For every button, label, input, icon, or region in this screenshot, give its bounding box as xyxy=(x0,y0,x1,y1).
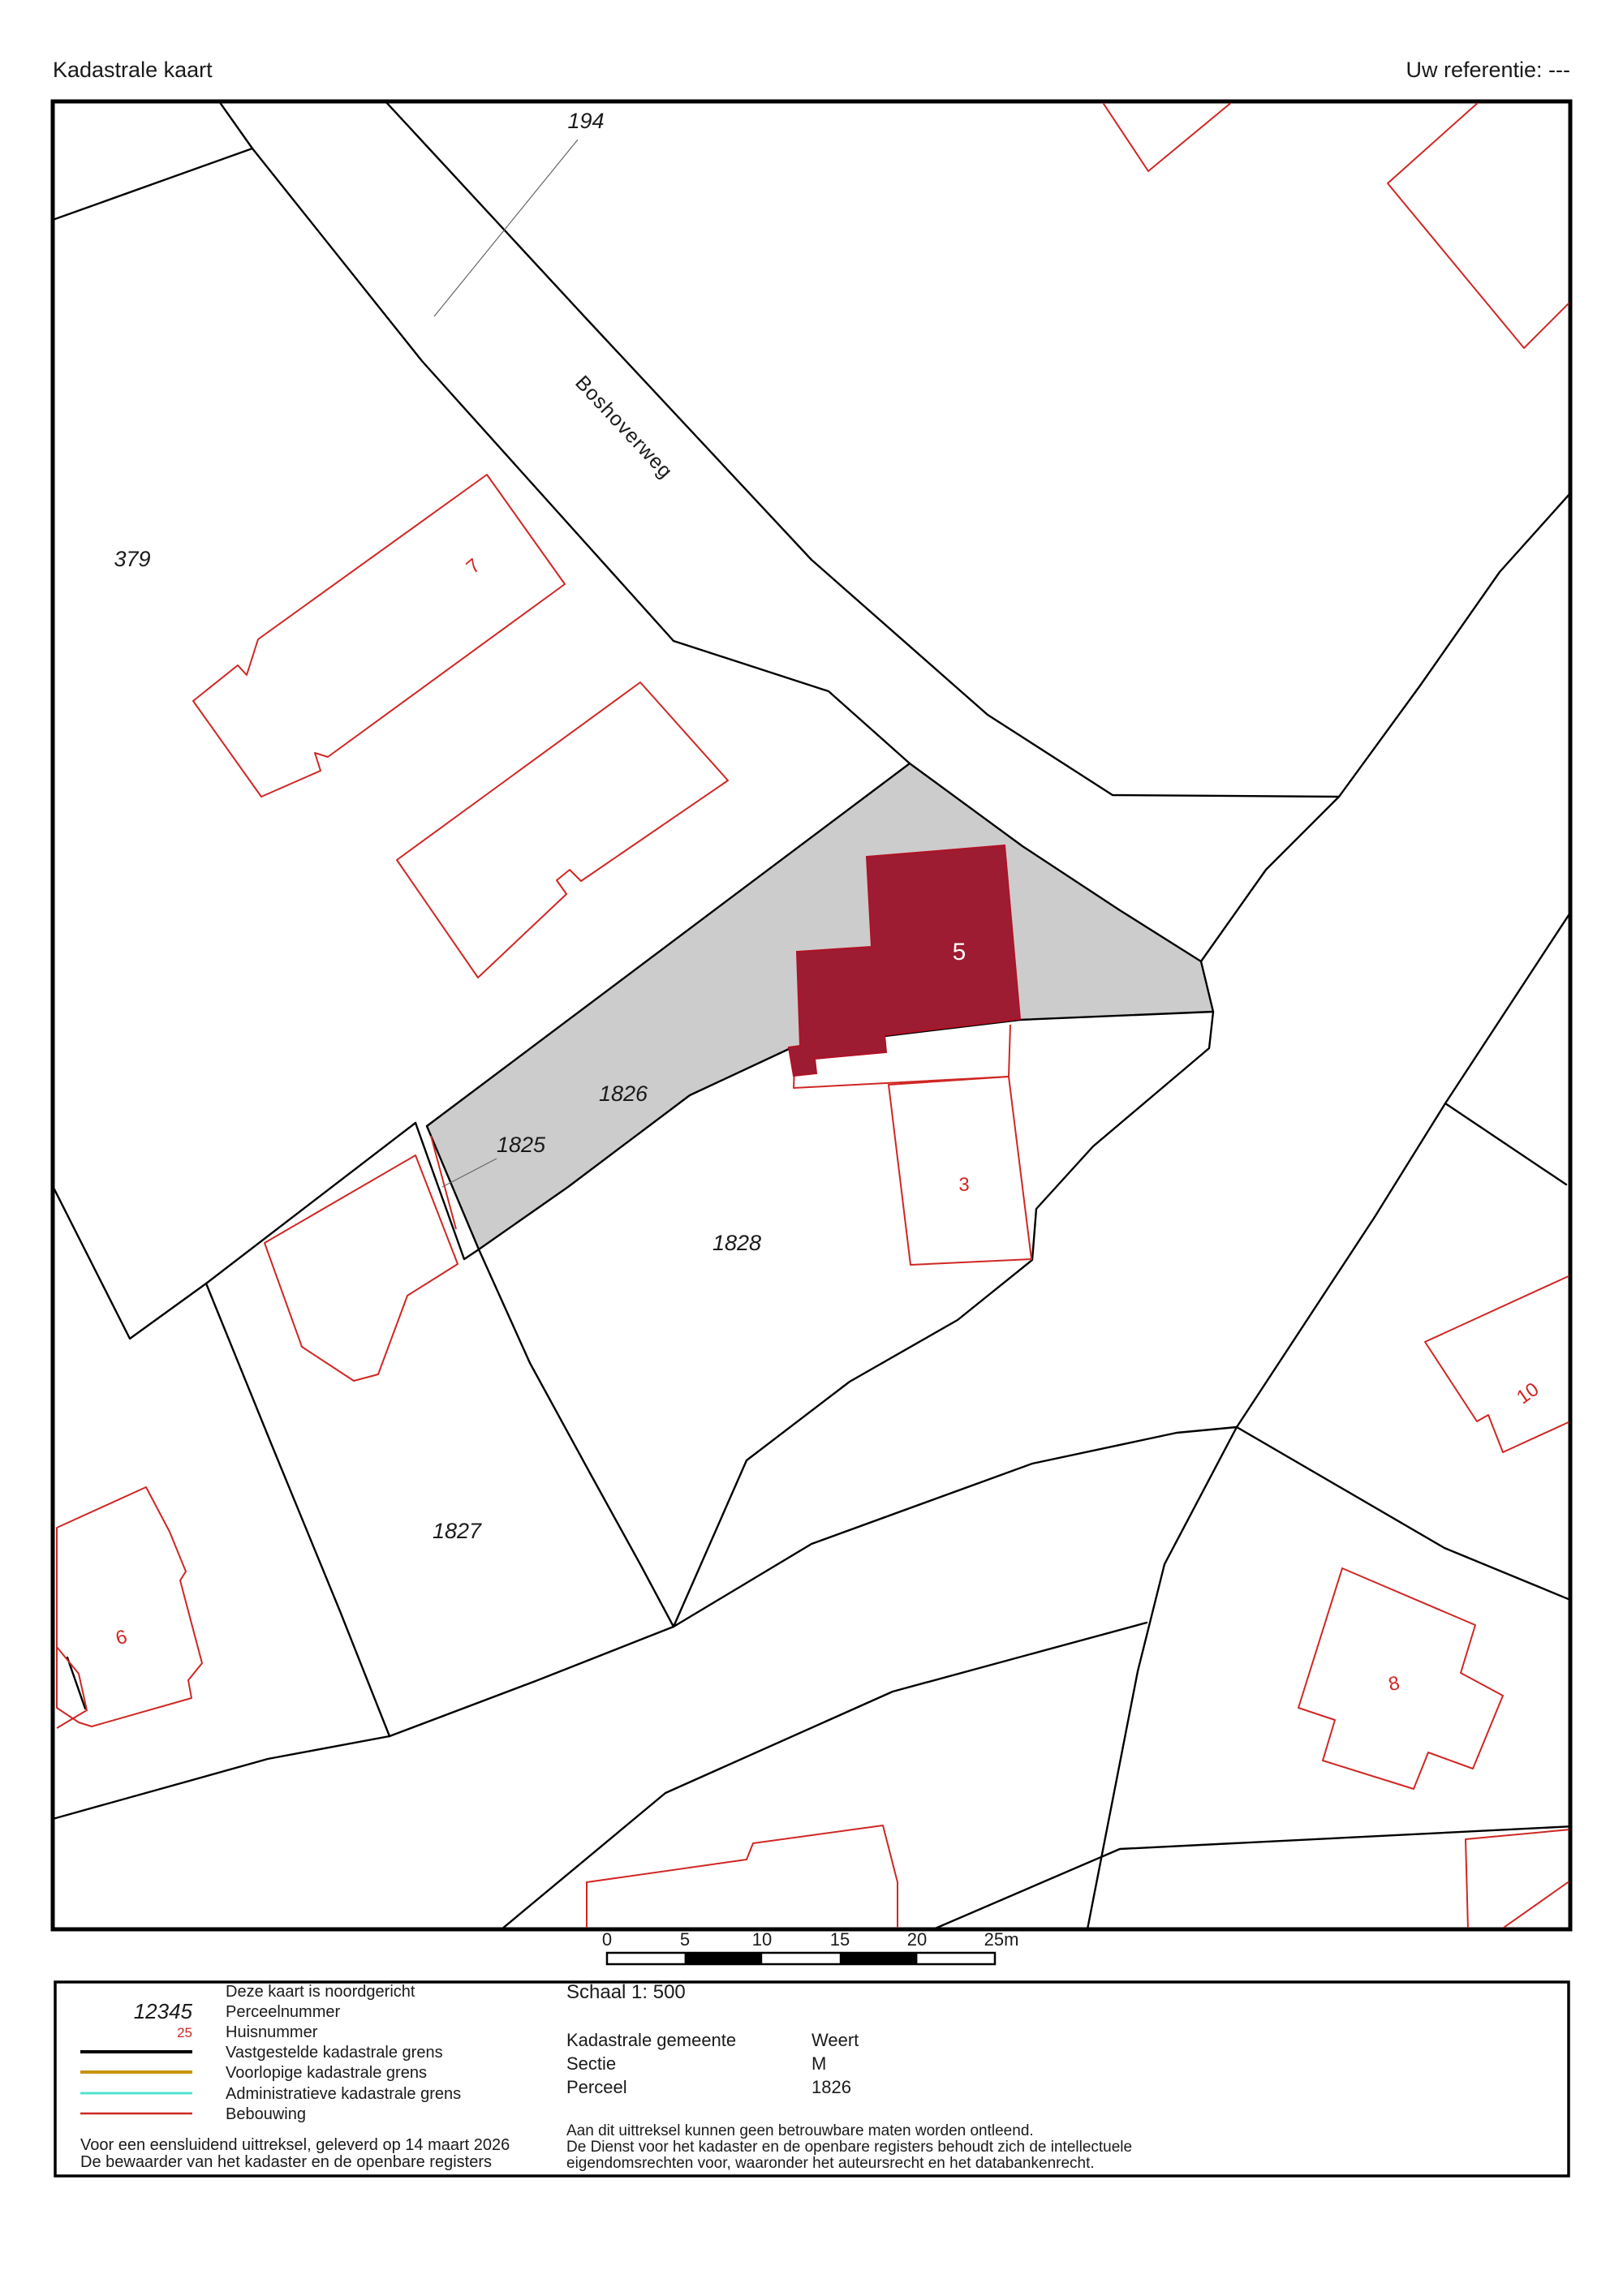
legend-label-huisnummer: Huisnummer xyxy=(226,2023,318,2041)
reference-label: Uw referentie: --- xyxy=(1406,58,1570,82)
legend-symbol-huisnummer: 25 xyxy=(177,2025,192,2040)
disclaimer-line-1: Aan dit uittreksel kunnen geen betrouwba… xyxy=(566,2122,1034,2139)
detail-label-gemeente: Kadastrale gemeente xyxy=(566,2030,736,2050)
map-canvas: Kadastrale kaart Uw referentie: --- xyxy=(0,0,1623,2296)
legend-label-perceelnummer: Perceelnummer xyxy=(226,2003,341,2021)
parcel-label-1825: 1825 xyxy=(497,1133,546,1157)
scale-tick-15: 15 xyxy=(830,1929,850,1950)
parcel-label-1828: 1828 xyxy=(712,1231,761,1255)
legend-label-vastgestelde: Vastgestelde kadastrale grens xyxy=(226,2044,443,2062)
legend-delivery-line2: De bewaarder van het kadaster en de open… xyxy=(80,2153,492,2171)
scale-tick-25m: 25m xyxy=(984,1929,1019,1950)
legend-north-note: Deze kaart is noordgericht xyxy=(226,1983,415,2001)
parcel-label-194: 194 xyxy=(567,109,604,133)
parcel-label-379: 379 xyxy=(114,547,150,571)
parcel-label-1827: 1827 xyxy=(433,1519,482,1543)
parcel-label-1826: 1826 xyxy=(599,1081,648,1106)
scale-tick-20: 20 xyxy=(907,1929,927,1950)
page-title: Kadastrale kaart xyxy=(53,58,213,82)
detail-value-perceel: 1826 xyxy=(811,2077,851,2097)
cadastral-map-page: Kadastrale kaart Uw referentie: --- xyxy=(0,0,1623,2296)
scale-bar-frame xyxy=(607,1953,995,1964)
disclaimer-line-2: De Dienst voor het kadaster en de openba… xyxy=(566,2139,1132,2156)
scale-tick-10: 10 xyxy=(752,1929,772,1950)
house-number-5: 5 xyxy=(953,939,966,965)
legend-symbol-perceelnummer: 12345 xyxy=(134,1999,193,2023)
legend-delivery-line1: Voor een eensluidend uittreksel, gelever… xyxy=(80,2136,510,2154)
detail-value-sectie: M xyxy=(811,2053,826,2074)
scale-tick-5: 5 xyxy=(680,1929,690,1950)
house-number-3: 3 xyxy=(958,1174,969,1196)
detail-value-gemeente: Weert xyxy=(811,2030,859,2050)
detail-label-sectie: Sectie xyxy=(566,2053,616,2074)
scale-label: Schaal 1: 500 xyxy=(566,1981,686,2003)
detail-label-perceel: Perceel xyxy=(566,2077,627,2097)
disclaimer-line-3: eigendomsrechten voor, waaronder het aut… xyxy=(566,2155,1095,2172)
legend-label-bebouwing: Bebouwing xyxy=(226,2105,306,2123)
scale-tick-0: 0 xyxy=(602,1929,612,1950)
legend-label-voorlopige: Voorlopige kadastrale grens xyxy=(226,2064,427,2082)
legend-label-administratieve: Administratieve kadastrale grens xyxy=(226,2085,461,2103)
scale-bar-segment-black-1 xyxy=(685,1953,763,1964)
scale-bar: 0 5 10 15 20 25m xyxy=(602,1929,1019,1964)
scale-bar-segment-black-2 xyxy=(840,1953,918,1964)
